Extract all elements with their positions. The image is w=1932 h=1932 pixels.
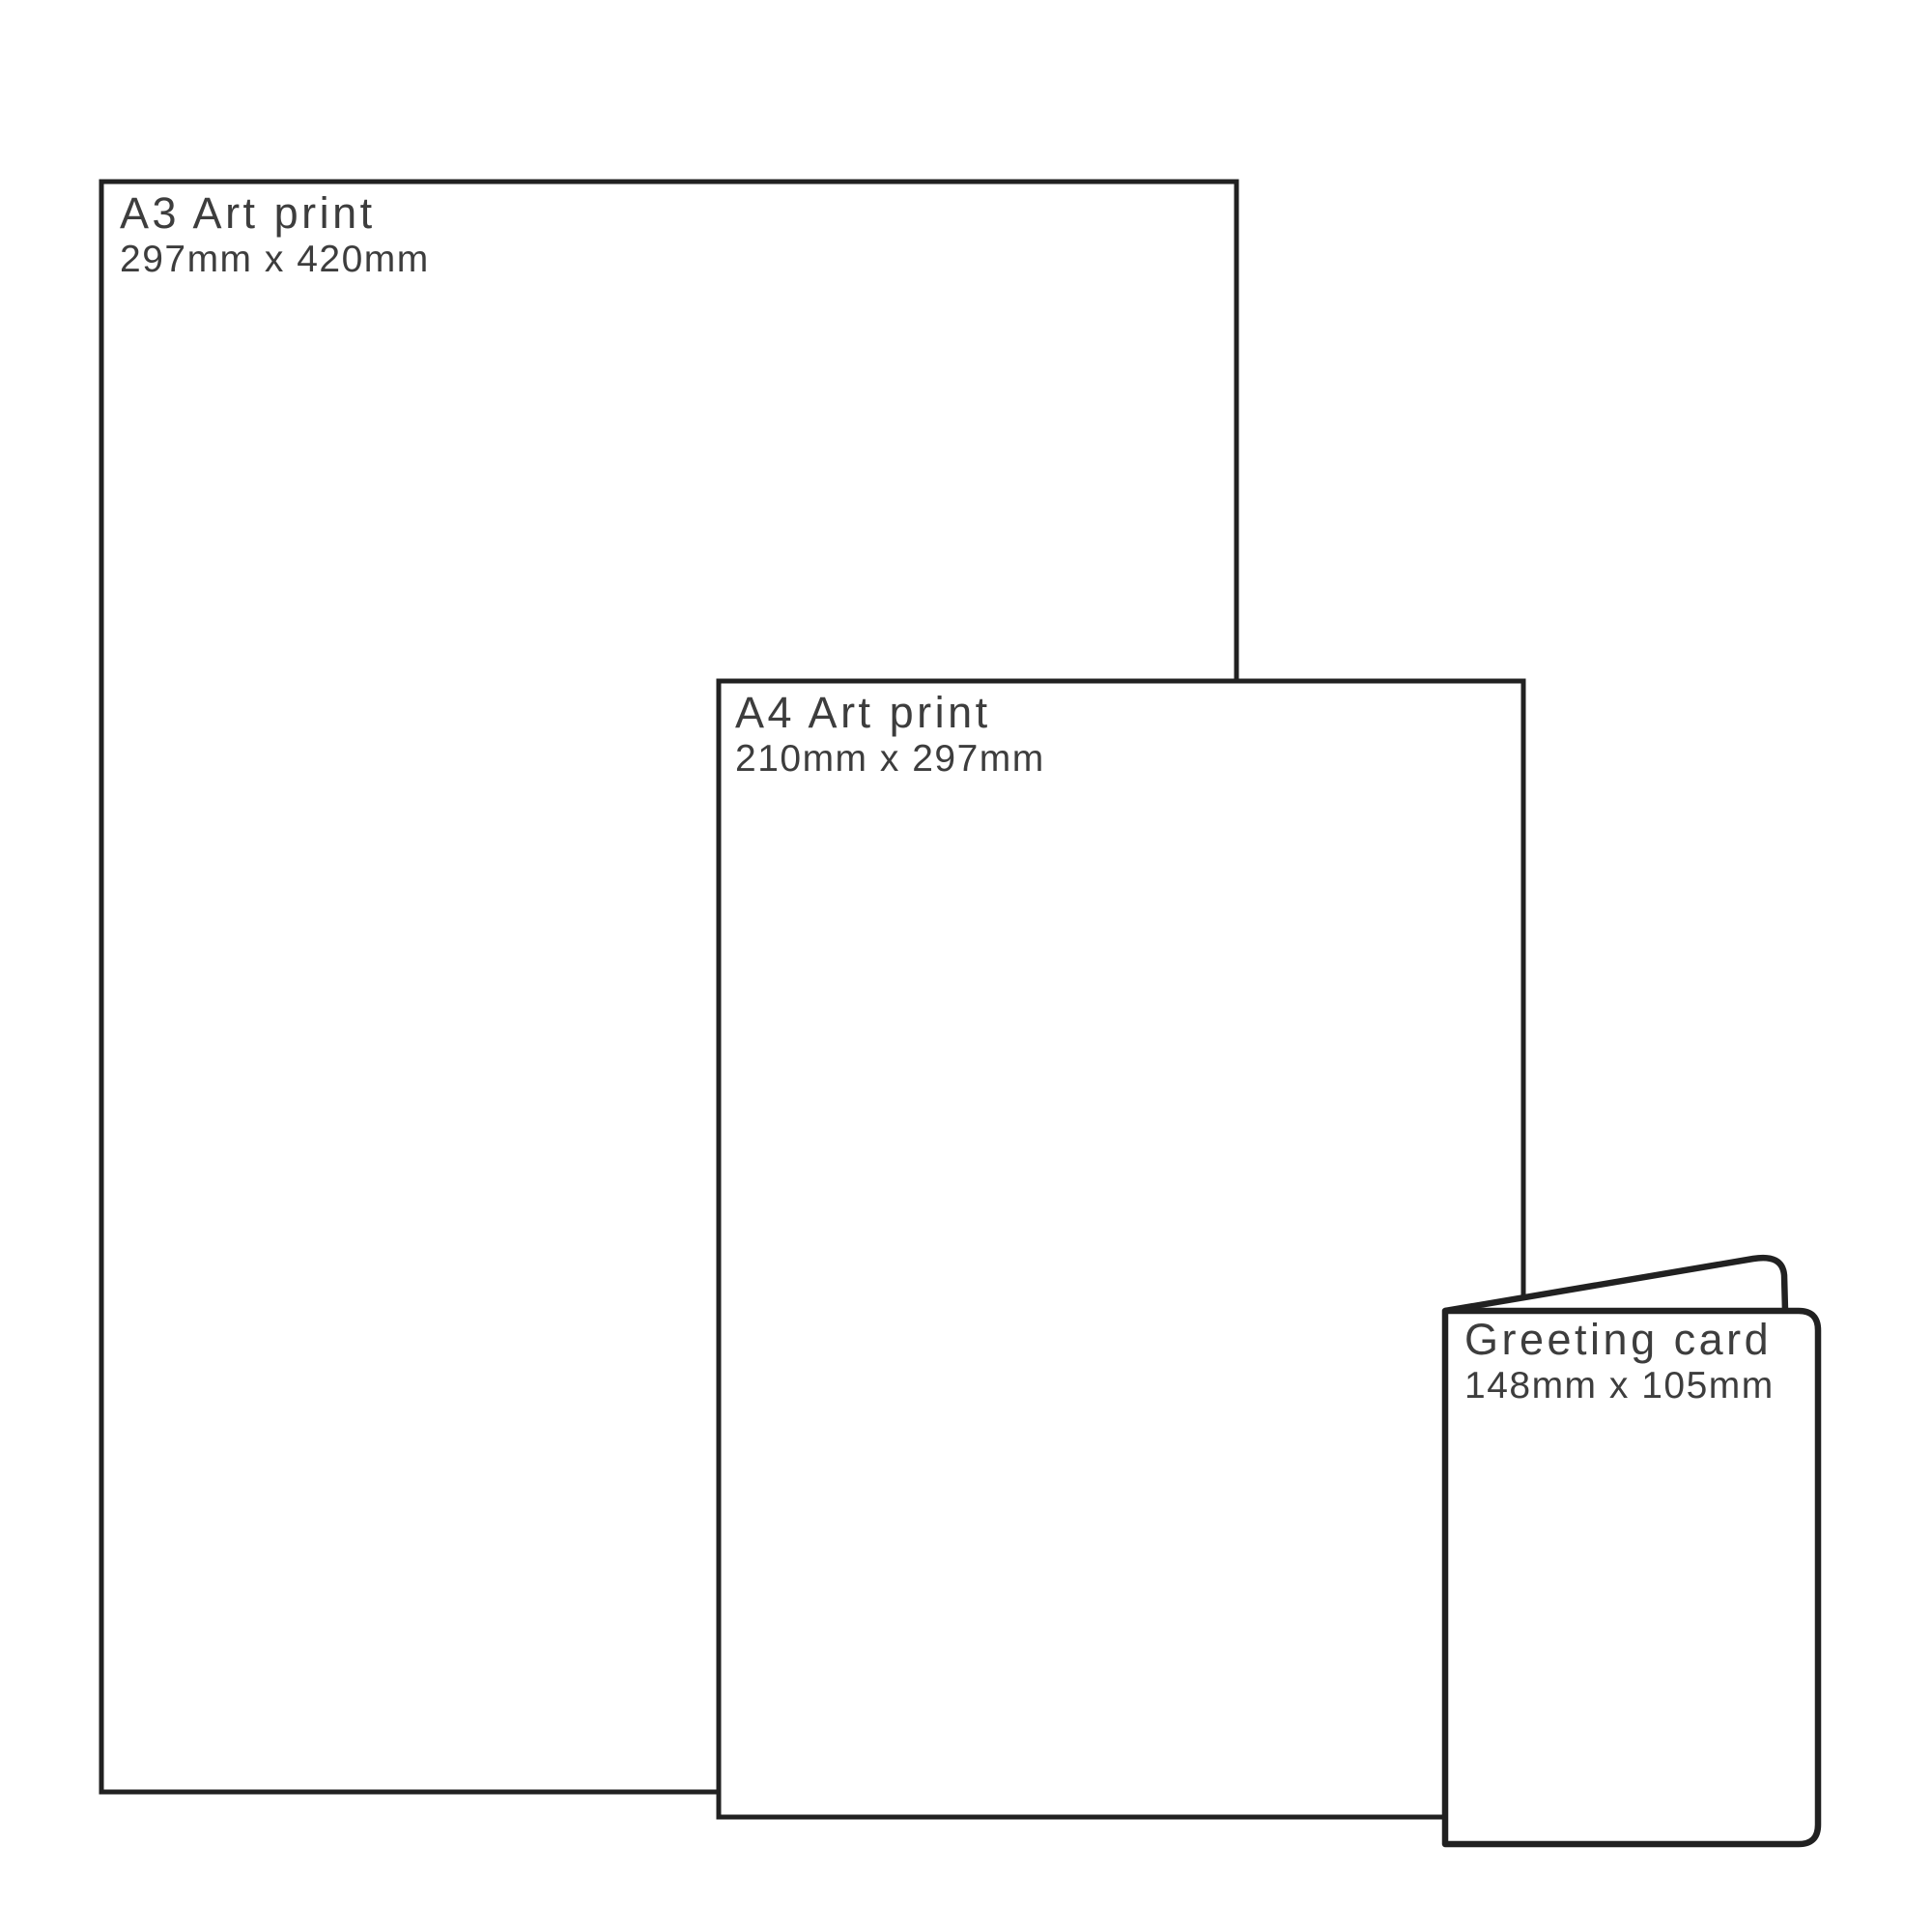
a3-print-dimensions: 297mm x 420mm [120,238,430,281]
a4-print-dimensions: 210mm x 297mm [735,737,1045,781]
size-outlines-graphic [0,0,1932,1932]
greeting-card-label: Greeting card 148mm x 105mm [1464,1316,1775,1407]
a3-print-label: A3 Art print 297mm x 420mm [120,189,430,281]
a3-print-title: A3 Art print [120,189,430,238]
a4-print-outline [719,681,1523,1817]
greeting-card-title: Greeting card [1464,1316,1775,1364]
greeting-card-dimensions: 148mm x 105mm [1464,1364,1775,1407]
a4-print-label: A4 Art print 210mm x 297mm [735,689,1045,781]
a4-print-title: A4 Art print [735,689,1045,737]
print-size-comparison-diagram: A3 Art print 297mm x 420mm A4 Art print … [0,0,1932,1932]
